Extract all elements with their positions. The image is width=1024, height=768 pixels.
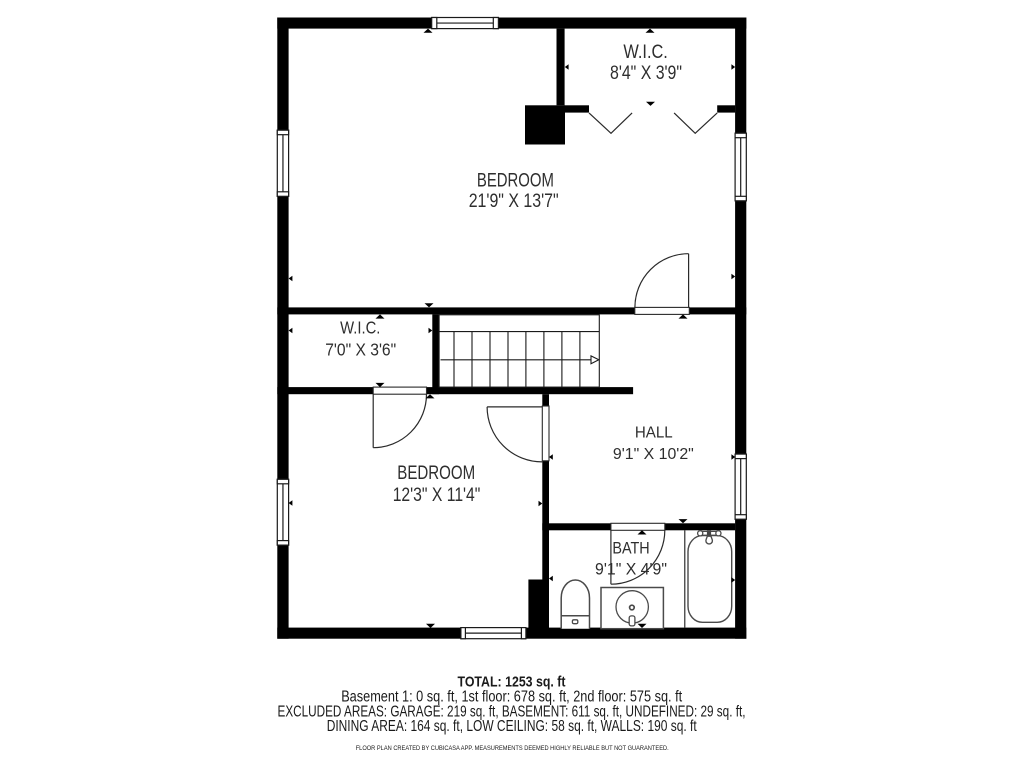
svg-text:BATH: BATH	[612, 539, 649, 558]
svg-text:W.I.C.: W.I.C.	[340, 318, 380, 338]
svg-text:BEDROOM: BEDROOM	[477, 171, 554, 192]
svg-text:FLOOR PLAN CREATED BY CUBICASA: FLOOR PLAN CREATED BY CUBICASA APP. MEAS…	[356, 745, 669, 752]
svg-text:DINING AREA: 164 sq. ft, LOW C: DINING AREA: 164 sq. ft, LOW CEILING: 58…	[327, 718, 698, 735]
svg-text:9'1" X 10'2": 9'1" X 10'2"	[613, 446, 694, 463]
svg-text:HALL: HALL	[635, 425, 673, 442]
svg-text:12'3" X 11'4": 12'3" X 11'4"	[393, 485, 481, 506]
svg-text:21'9" X 13'7": 21'9" X 13'7"	[469, 191, 559, 212]
svg-text:9'1" X 4'9": 9'1" X 4'9"	[595, 560, 667, 579]
svg-text:7'0" X 3'6": 7'0" X 3'6"	[325, 339, 396, 359]
svg-text:W.I.C.: W.I.C.	[623, 42, 668, 63]
svg-text:8'4" X 3'9": 8'4" X 3'9"	[610, 63, 682, 84]
svg-text:BEDROOM: BEDROOM	[397, 463, 475, 484]
